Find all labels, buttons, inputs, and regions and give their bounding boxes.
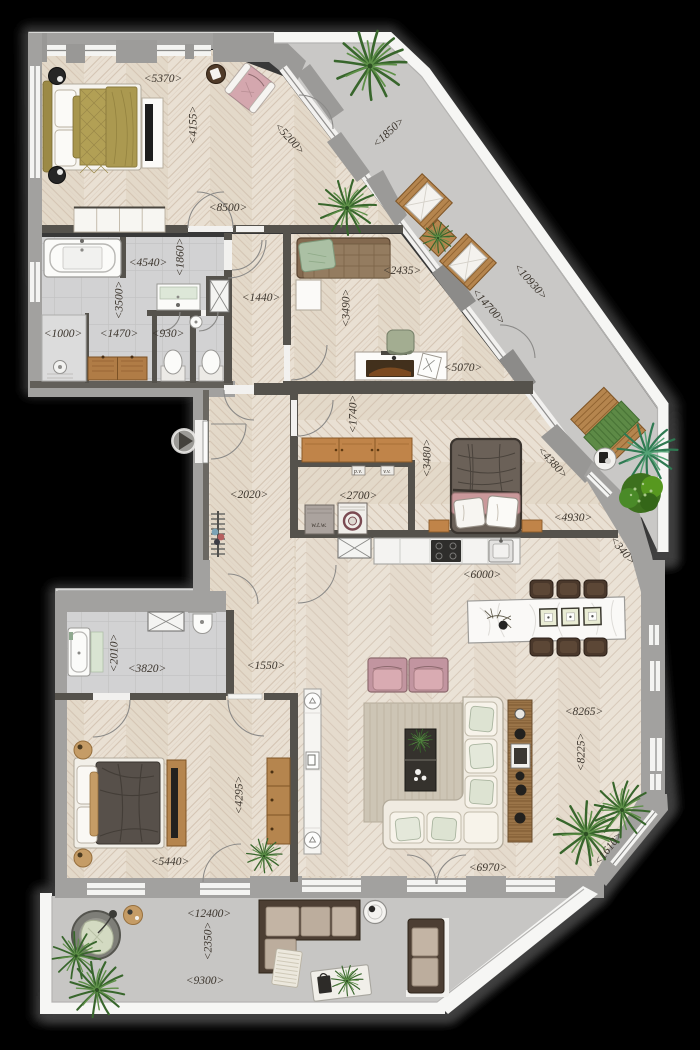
svg-text:<4155>: <4155> xyxy=(188,106,200,145)
svg-text:<8265>: <8265> xyxy=(565,706,604,718)
svg-text:<4540>: <4540> xyxy=(129,257,168,269)
svg-text:<1740>: <1740> xyxy=(348,395,360,434)
svg-text:<1470>: <1470> xyxy=(100,328,139,340)
svg-text:<8225>: <8225> xyxy=(576,733,588,772)
svg-text:w.t.w.: w.t.w. xyxy=(311,521,327,529)
svg-text:<3490>: <3490> xyxy=(341,289,353,328)
svg-text:<4295>: <4295> xyxy=(234,776,246,815)
svg-text:<4930>: <4930> xyxy=(554,512,593,524)
svg-text:p.v.: p.v. xyxy=(353,469,362,475)
svg-text:<5070>: <5070> xyxy=(444,362,483,374)
svg-text:<6000>: <6000> xyxy=(463,569,502,581)
svg-text:<1860>: <1860> xyxy=(175,238,187,277)
svg-text:<5370>: <5370> xyxy=(144,73,183,85)
svg-text:<1550>: <1550> xyxy=(247,660,286,672)
svg-text:<8500>: <8500> xyxy=(209,202,248,214)
svg-text:<2010>: <2010> xyxy=(109,634,121,673)
svg-text:<5440>: <5440> xyxy=(151,856,190,868)
svg-text:<9300>: <9300> xyxy=(186,975,225,987)
svg-text:<3820>: <3820> xyxy=(128,663,167,675)
svg-text:<3500>: <3500> xyxy=(114,281,126,320)
svg-text:<2435>: <2435> xyxy=(383,265,422,277)
svg-text:<6970>: <6970> xyxy=(469,862,508,874)
svg-text:<1000>: <1000> xyxy=(44,328,83,340)
svg-text:<2700>: <2700> xyxy=(339,490,378,502)
svg-text:<2350>: <2350> xyxy=(203,922,215,961)
svg-text:<1440>: <1440> xyxy=(242,292,281,304)
svg-text:<3480>: <3480> xyxy=(422,439,434,478)
svg-text:<2020>: <2020> xyxy=(230,489,269,501)
svg-text:v.v.: v.v. xyxy=(383,469,390,475)
svg-text:<12400>: <12400> xyxy=(187,908,231,920)
svg-text:<930>: <930> xyxy=(152,328,185,340)
